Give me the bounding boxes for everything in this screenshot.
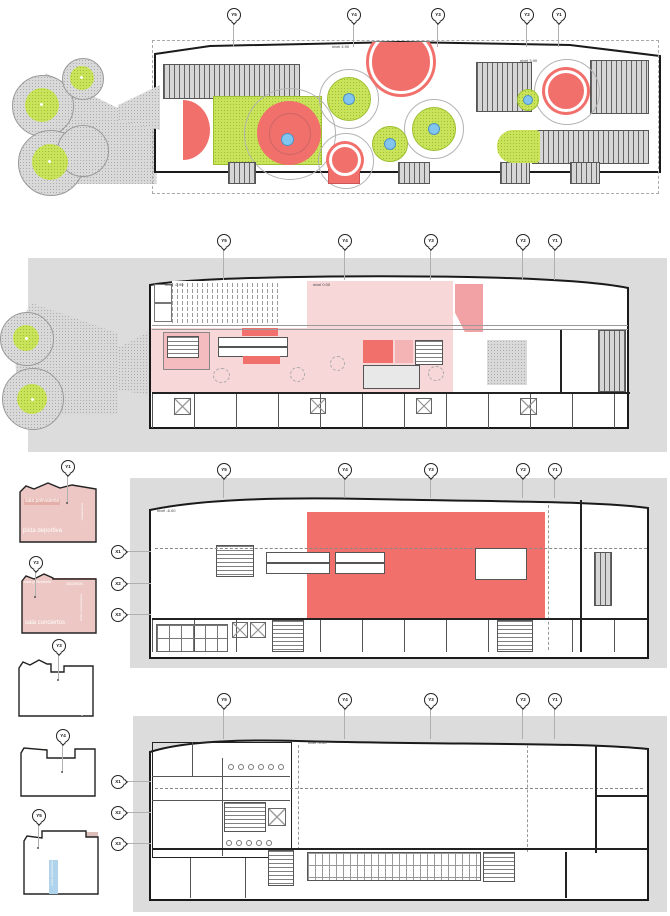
lift-shaft <box>416 398 432 414</box>
stair-flight <box>224 802 266 832</box>
service-louvers <box>598 330 626 392</box>
column-void <box>290 367 305 382</box>
leader-dot <box>57 679 59 681</box>
zone-label: instalaciones <box>81 503 84 520</box>
escalator <box>335 552 385 563</box>
fixture <box>248 764 254 770</box>
grid-pin-x3: X3 <box>111 837 125 851</box>
grid-pin-x2: X2 <box>111 577 125 591</box>
lift-shaft <box>268 808 286 826</box>
grid-leader <box>125 583 151 584</box>
grid-leader <box>522 706 523 739</box>
wall <box>152 776 290 777</box>
zone-label: escenario <box>22 752 38 756</box>
grid-pin-y4: Y4 <box>347 8 361 22</box>
section-thumb-y4: pista deportiva cafetería escenario aseo… <box>19 745 97 798</box>
section-thumb-y2: accesos núcleo comunicaciones sala poliv… <box>20 572 98 635</box>
grid-leader <box>430 247 431 280</box>
fixture <box>278 764 284 770</box>
wall <box>222 758 223 856</box>
grid-pin-y5: Y5 <box>227 8 241 22</box>
grid-pin-y2: Y2 <box>516 693 530 707</box>
corridor-line <box>152 325 628 326</box>
zone-label: calle comercial <box>54 834 80 843</box>
section-leader <box>67 473 68 503</box>
grid-pin-y2: Y2 <box>516 463 530 477</box>
fixture <box>228 764 234 770</box>
leader-dot <box>37 847 39 849</box>
level-label: nivel -9.00 <box>308 740 326 745</box>
facade-buttress <box>398 162 430 184</box>
grid-leader <box>344 706 345 739</box>
stair-flight <box>415 340 443 365</box>
wall <box>597 795 648 797</box>
archive-racks <box>307 852 481 881</box>
tree-center <box>31 398 34 401</box>
oculus <box>343 93 355 105</box>
grid-leader <box>223 706 224 739</box>
zone-label: instalaciones <box>28 877 31 891</box>
stair-flight <box>483 852 515 882</box>
lift-shaft <box>250 622 266 638</box>
level-label: nivel -6.00 <box>157 508 175 513</box>
fixture <box>238 764 244 770</box>
zone-label: sala polivalente <box>21 669 45 673</box>
grid-pin-y5: Y5 <box>217 693 231 707</box>
wall <box>245 858 246 898</box>
zone-core: núcleo comunicaciones <box>49 860 58 894</box>
architectural-plan-sheet: Y5 Y4 Y3 Y2 Y1 <box>0 0 670 916</box>
grid-leader <box>554 247 555 280</box>
red-skylight <box>542 67 590 115</box>
grid-leader <box>125 781 151 782</box>
section-pin-y2: Y2 <box>29 556 43 570</box>
green-roof-blob <box>497 130 540 163</box>
lift-shaft <box>520 398 537 415</box>
wall <box>560 330 562 392</box>
escalator <box>266 563 330 574</box>
zone-label: accesos <box>66 582 83 587</box>
grid-pin-y2: Y2 <box>516 234 530 248</box>
grid-leader <box>522 247 523 280</box>
zone-label: núcleo comunicaciones <box>52 861 55 886</box>
grid-line <box>155 788 643 789</box>
wall <box>565 852 567 898</box>
stair-flight <box>363 365 420 389</box>
tree-center <box>40 103 43 106</box>
zone-label: cafetería <box>39 764 57 769</box>
wall <box>152 392 630 394</box>
roof-plan: nivel 4.90 nivel 3.90 <box>150 36 665 198</box>
red-core <box>363 340 393 363</box>
section-pin-y1: Y1 <box>61 460 75 474</box>
escalator <box>218 337 288 347</box>
leader-dot <box>61 771 63 773</box>
stair-flight <box>268 850 294 886</box>
grid-pin-y3: Y3 <box>424 234 438 248</box>
column-void <box>330 356 345 371</box>
toilet-cells <box>156 624 228 652</box>
tree-center <box>25 337 28 340</box>
wall <box>192 742 193 776</box>
zone-label: aseos <box>61 881 64 888</box>
grid-leader <box>554 706 555 739</box>
level-label: nivel 3.90 <box>520 58 537 63</box>
section-leader <box>62 742 63 772</box>
column-void <box>428 366 444 381</box>
wall <box>152 848 648 850</box>
facade-buttress <box>500 162 530 184</box>
facade-buttress <box>570 162 600 184</box>
fixture <box>236 840 242 846</box>
grid-leader <box>430 706 431 739</box>
zone-label: núcleo comunicaciones <box>81 594 84 621</box>
grid-pin-x1: X1 <box>111 545 125 559</box>
section-pin-y4: Y4 <box>56 729 70 743</box>
wall <box>595 745 597 853</box>
leader-dot <box>66 502 68 504</box>
oculus <box>384 138 396 150</box>
fixture <box>266 840 272 846</box>
lift-shaft <box>174 398 191 415</box>
level-label: nivel 0.00 <box>313 282 330 287</box>
zone-label: sala polivalente <box>24 499 60 505</box>
fixture <box>268 764 274 770</box>
section-thumb-y3: sala polivalente núcleo comunicaciones p… <box>17 658 95 718</box>
zone-label: bar <box>63 869 69 873</box>
stair-zone <box>487 340 527 385</box>
grid-leader <box>125 614 151 615</box>
grid-pin-y2: Y2 <box>520 8 534 22</box>
stair-flight <box>272 620 304 652</box>
grid-pin-x1: X1 <box>111 775 125 789</box>
corridor-line <box>152 329 628 330</box>
escalator <box>266 552 330 563</box>
grid-pin-x2: X2 <box>111 806 125 820</box>
red-skylight <box>326 141 364 179</box>
grid-leader <box>125 551 151 552</box>
fixture <box>226 840 232 846</box>
wall <box>580 500 582 652</box>
section-pin-y5: Y5 <box>32 809 46 823</box>
level-label: nivel 4.90 <box>332 44 349 49</box>
service-louvers <box>594 552 612 606</box>
zone-label: núcleo comunicaciones <box>79 669 82 696</box>
wall <box>152 800 290 801</box>
leader-dot <box>34 596 36 598</box>
zone-label: sala polivalente <box>24 580 52 584</box>
section-thumb-y5: calle comercial auditorio cafetería bar … <box>22 828 100 896</box>
grid-pin-y3: Y3 <box>431 8 445 22</box>
roof-louvers <box>532 130 649 164</box>
column-void <box>213 368 230 383</box>
grid-pin-y1: Y1 <box>548 234 562 248</box>
grid-pin-y4: Y4 <box>338 693 352 707</box>
grid-pin-y1: Y1 <box>548 463 562 477</box>
grid-line <box>527 745 528 852</box>
fixture <box>256 840 262 846</box>
zone-label: pista deportiva <box>31 781 64 787</box>
oculus <box>428 123 440 135</box>
zone-label: cafetería <box>27 861 43 865</box>
grid-pin-y3: Y3 <box>424 693 438 707</box>
red-zone <box>243 356 280 364</box>
wall <box>152 618 648 620</box>
zone-label: sala conciertos <box>25 620 65 627</box>
stair-flight <box>497 620 533 652</box>
room <box>154 303 172 322</box>
zone-label: instalaciones <box>81 700 84 716</box>
grid-pin-y4: Y4 <box>338 234 352 248</box>
zone-label: aseos <box>40 878 43 885</box>
grid-pin-y3: Y3 <box>424 463 438 477</box>
lift-shaft <box>310 398 326 414</box>
grid-pin-y5: Y5 <box>217 234 231 248</box>
zone-label: aseos <box>81 757 85 766</box>
grid-leader <box>344 247 345 280</box>
stair-flight <box>216 545 254 577</box>
section-thumb-y1: instalaciones sala polivalente pista dep… <box>18 480 98 544</box>
grid-line <box>548 505 549 650</box>
lift-shaft <box>232 622 248 638</box>
auditorium-seating <box>172 281 280 324</box>
fixture <box>258 764 264 770</box>
grid-line <box>298 745 299 850</box>
oculus <box>281 133 294 146</box>
tree-center <box>80 76 83 79</box>
grid-line <box>155 548 647 549</box>
zone-label: cocinas <box>75 884 89 888</box>
grid-pin-y4: Y4 <box>338 463 352 477</box>
grid-leader <box>223 247 224 280</box>
zone-label: pista deportiva <box>23 702 62 709</box>
grid-pin-x3: X3 <box>111 608 125 622</box>
zone-label: pista deportiva <box>23 528 62 535</box>
stair-flight <box>475 548 527 580</box>
escalator <box>335 563 385 574</box>
section-pin-y3: Y3 <box>52 639 66 653</box>
grid-pin-y1: Y1 <box>552 8 566 22</box>
wall <box>190 858 191 898</box>
grid-pin-y5: Y5 <box>217 463 231 477</box>
grid-leader <box>125 812 151 813</box>
grid-leader <box>125 843 151 844</box>
grid-pin-y1: Y1 <box>548 693 562 707</box>
service-rooms <box>152 393 630 428</box>
fixture <box>246 840 252 846</box>
oculus <box>523 95 533 105</box>
tree-center <box>48 160 51 163</box>
pink-core <box>395 340 413 363</box>
stair-flight <box>167 336 199 358</box>
facade-buttress <box>228 162 256 184</box>
level-label: nivel -0.90 <box>165 282 183 287</box>
